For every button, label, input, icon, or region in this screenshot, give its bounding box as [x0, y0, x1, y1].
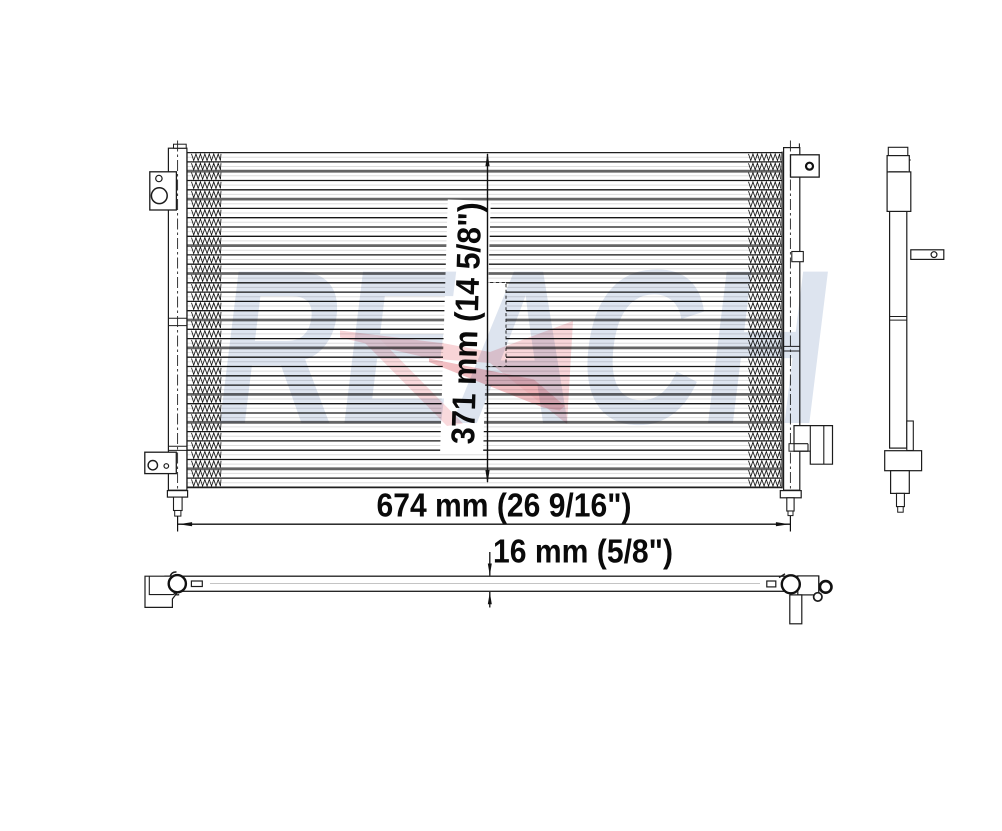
svg-text:16 mm (5/8"): 16 mm (5/8")	[493, 533, 673, 570]
svg-text:674 mm (26 9/16"): 674 mm (26 9/16")	[377, 487, 632, 524]
